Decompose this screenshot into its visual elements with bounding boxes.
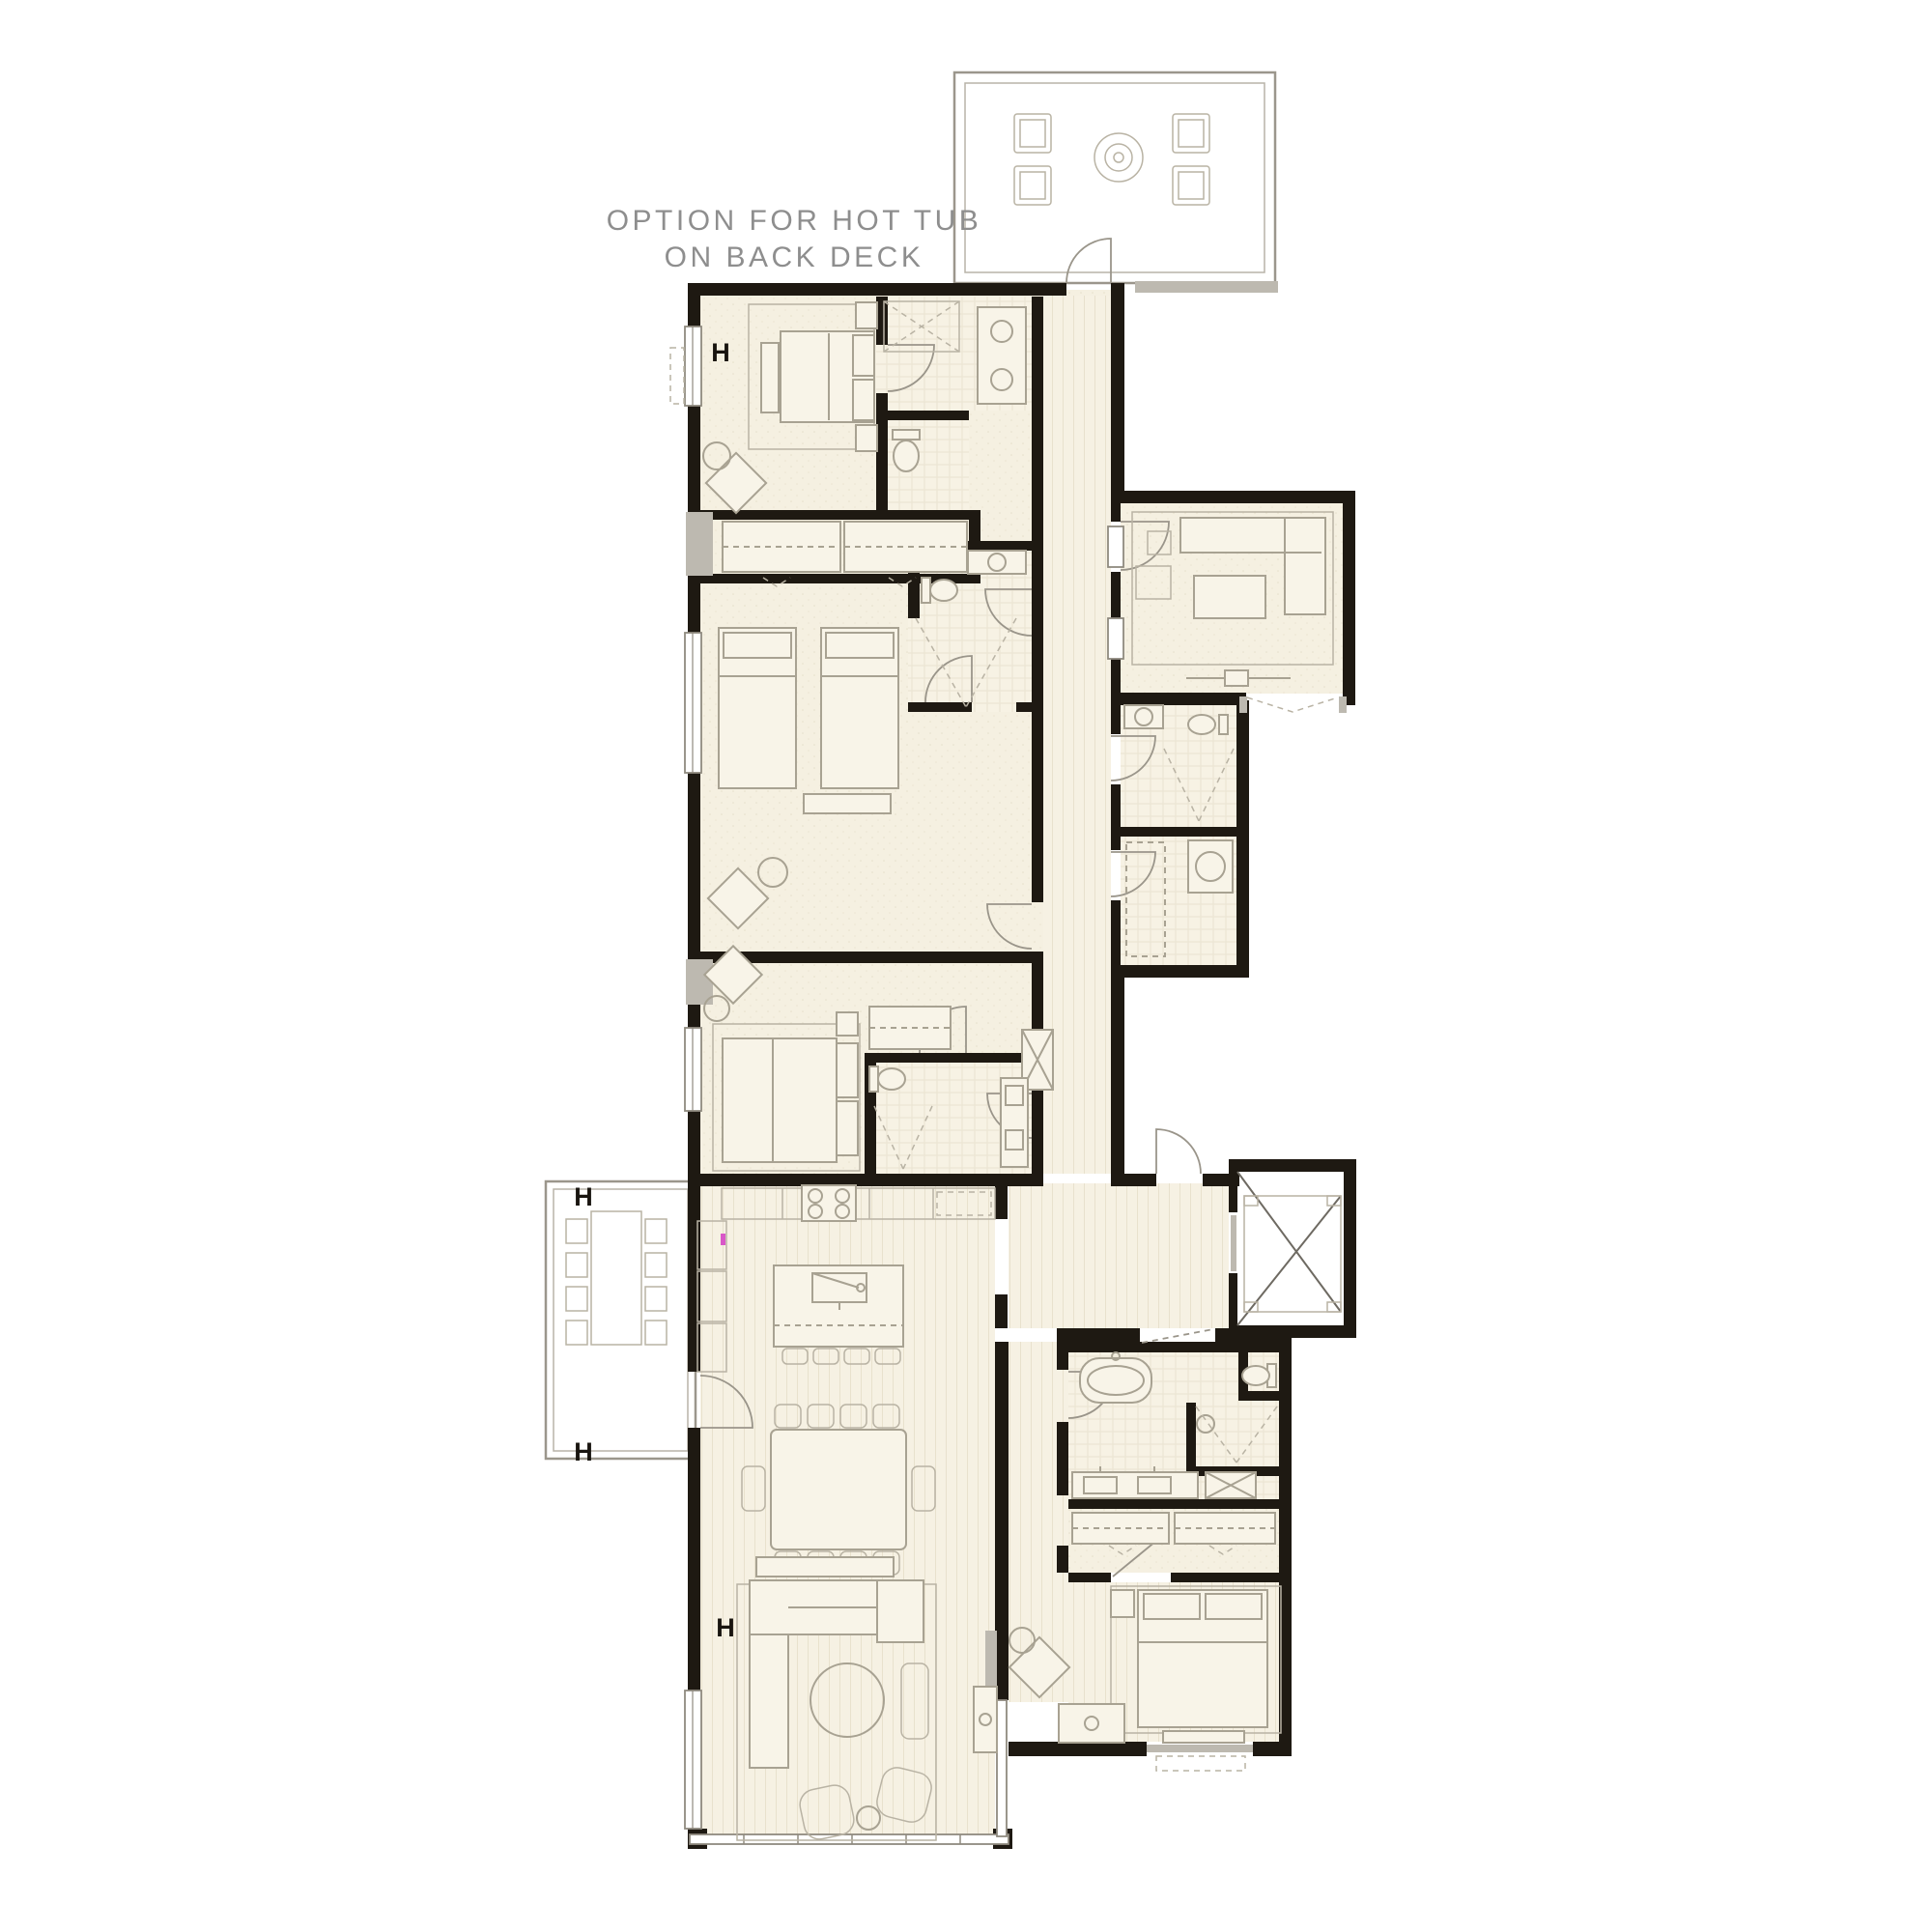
entry-hall-floor <box>1009 1183 1229 1328</box>
side-deck <box>546 1181 696 1459</box>
island-with-sink <box>774 1265 903 1347</box>
nightstand-icon <box>837 1012 858 1036</box>
coffee-table-icon <box>1194 576 1265 618</box>
fireplace-panel <box>985 1631 997 1692</box>
bifold-closet-doors <box>1247 697 1338 712</box>
exterior-step <box>1156 1756 1245 1771</box>
dresser-icon <box>1059 1704 1124 1743</box>
plan-note-tick <box>721 1234 725 1245</box>
toilet-icon <box>1242 1364 1276 1387</box>
h-marker-living: H <box>716 1613 735 1642</box>
master-slider <box>1147 1745 1253 1752</box>
floor-plan-canvas: OPTION FOR HOT TUB ON BACK DECK H H H H <box>0 0 1932 1932</box>
floor-plan-page: OPTION FOR HOT TUB ON BACK DECK H H H H <box>0 0 1932 1932</box>
window-seat-1 <box>686 512 713 576</box>
toilet-icon <box>869 1066 905 1092</box>
dining-table-icon <box>771 1430 906 1549</box>
nightstand-icon <box>856 425 877 451</box>
h-marker-deck-south: H <box>574 1437 593 1466</box>
range-icon <box>802 1185 856 1221</box>
washer-dryer-icon <box>1188 840 1233 893</box>
elevator <box>1237 1172 1341 1325</box>
nightstand-icon <box>856 302 877 328</box>
h-marker-deck-north: H <box>574 1182 593 1211</box>
nightstand-icon <box>1111 1590 1134 1617</box>
linen-cabinet-icon <box>1206 1472 1256 1498</box>
freestanding-tub-icon <box>1080 1352 1151 1403</box>
bench-icon <box>1163 1731 1244 1743</box>
wardrobe-icon <box>869 1007 951 1049</box>
h-marker-bedroom1: H <box>711 338 730 367</box>
toilet-icon <box>893 430 920 471</box>
toilet-icon <box>922 578 957 603</box>
cabinet-icon <box>974 1687 997 1752</box>
twin-bed-icon <box>719 628 796 788</box>
back-deck <box>954 72 1278 293</box>
deck-step <box>1135 281 1278 293</box>
console-icon <box>756 1557 894 1577</box>
bath1-wc-floor <box>876 411 969 510</box>
window-seat-projection <box>670 348 684 404</box>
annotation-line-1: OPTION FOR HOT TUB <box>607 205 982 237</box>
bench-icon <box>804 794 891 813</box>
bed-icon <box>723 1038 837 1162</box>
bed-icon <box>1138 1590 1267 1727</box>
twin-bed-icon <box>821 628 898 788</box>
toilet-icon <box>1188 715 1228 734</box>
annotation-line-2: ON BACK DECK <box>665 241 924 273</box>
bench-icon <box>761 343 779 412</box>
